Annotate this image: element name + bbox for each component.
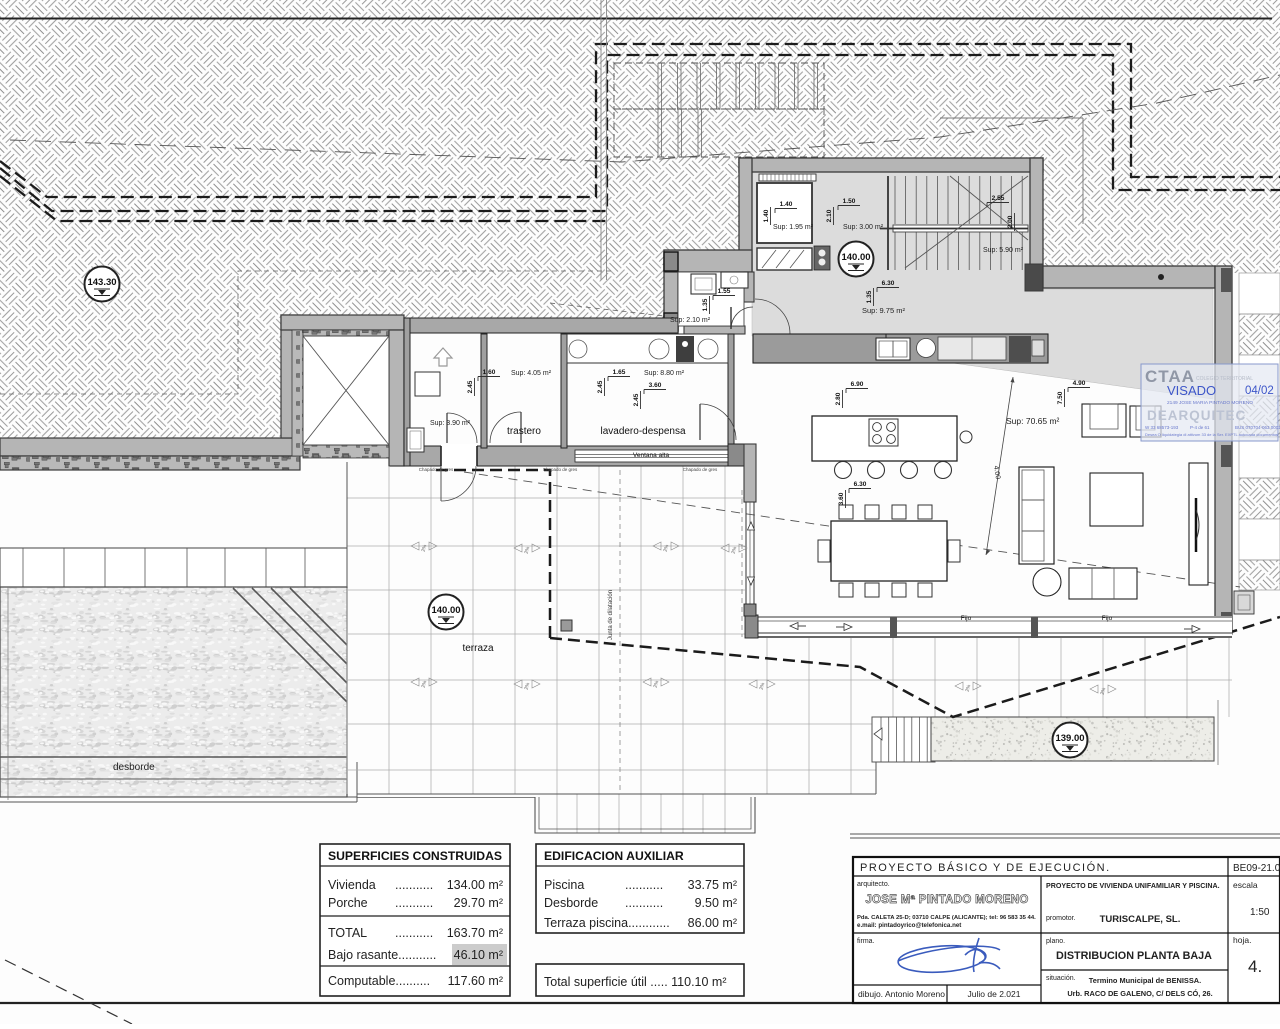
svg-text:DISTRIBUCION PLANTA BAJA: DISTRIBUCION PLANTA BAJA	[1056, 950, 1212, 962]
svg-text:2.80: 2.80	[835, 392, 842, 405]
svg-text:Sup: 8.80 m²: Sup: 8.80 m²	[644, 370, 685, 377]
svg-text:Piscina: Piscina	[544, 878, 584, 892]
svg-text:Vivienda: Vivienda	[328, 878, 376, 892]
svg-text:arquitecto.: arquitecto.	[857, 881, 890, 888]
svg-text:6.30: 6.30	[854, 481, 867, 488]
svg-text:86.00 m²: 86.00 m²	[688, 916, 737, 930]
svg-text:7.50: 7.50	[1057, 391, 1064, 404]
svg-text:1.65: 1.65	[613, 369, 626, 376]
svg-text:Urb. RACO DE GALENO, C/ D: Urb. RACO DE GALENO, C/ DELS CÓ, 26.	[1067, 989, 1212, 998]
svg-text:Chapado de gres: Chapado de gres	[543, 467, 578, 472]
svg-text:140.00: 140.00	[841, 252, 870, 263]
svg-text:hoja.: hoja.	[1233, 935, 1251, 945]
svg-text:1.35: 1.35	[702, 298, 709, 311]
svg-text:Porche: Porche	[328, 896, 368, 910]
svg-text:BE09-21.0: BE09-21.0	[1233, 863, 1280, 874]
svg-text:2.10: 2.10	[826, 209, 833, 222]
svg-text:Desea O liquidategia di attivu: Desea O liquidategia di attivum 33 de la…	[1145, 432, 1278, 437]
svg-text:Junta de dilatación: Junta de dilatación	[608, 590, 614, 640]
svg-text:2.00: 2.00	[1007, 215, 1014, 228]
svg-text:trastero: trastero	[507, 426, 541, 437]
svg-text:4.90: 4.90	[1073, 380, 1086, 387]
svg-text:...........: ...........	[395, 878, 433, 892]
svg-text:143.30: 143.30	[87, 277, 116, 288]
svg-text:Total superficie útil ..... 11: Total superficie útil ..... 110.10 m²	[544, 975, 727, 989]
svg-text:1.60: 1.60	[483, 369, 496, 376]
svg-text:1.55: 1.55	[718, 288, 731, 295]
svg-text:1.35: 1.35	[866, 290, 873, 303]
svg-text:9.50 m²: 9.50 m²	[695, 896, 737, 910]
svg-text:33.75 m²: 33.75 m²	[688, 878, 737, 892]
svg-text:6.90: 6.90	[851, 381, 864, 388]
svg-text:46.10 m²: 46.10 m²	[454, 948, 503, 962]
svg-text:VISADO: VISADO	[1167, 383, 1216, 398]
svg-text:lavadero-despensa: lavadero-despensa	[600, 426, 685, 437]
svg-text:2.45: 2.45	[597, 380, 604, 393]
svg-text:Ventana alta: Ventana alta	[633, 452, 670, 459]
svg-text:134.00 m²: 134.00 m²	[447, 878, 503, 892]
svg-text:04/02: 04/02	[1245, 385, 1274, 397]
svg-text:3.60: 3.60	[649, 382, 662, 389]
svg-text:...........: ...........	[395, 896, 433, 910]
svg-text:1.40: 1.40	[780, 201, 793, 208]
svg-text:firma.: firma.	[857, 938, 875, 945]
svg-text:Termino Municipal de BENISS: Termino Municipal de BENISSA.	[1089, 976, 1201, 985]
svg-text:Fijo: Fijo	[961, 615, 972, 622]
svg-text:Sup: 2.10 m²: Sup: 2.10 m²	[670, 317, 711, 324]
svg-text:6.30: 6.30	[882, 280, 895, 287]
svg-text:...........: ...........	[625, 878, 663, 892]
svg-text:2.45: 2.45	[467, 380, 474, 393]
svg-text:TURISCALPE, SL.: TURISCALPE, SL.	[1100, 914, 1181, 925]
svg-text:PROYECTO DE VIVIENDA UNIFAM: PROYECTO DE VIVIENDA UNIFAMILIAR Y PISCI…	[1046, 882, 1220, 890]
svg-text:e.mail: pintadoyrico@telefoni: e.mail: pintadoyrico@telefonica.net	[857, 922, 961, 929]
svg-text:terraza: terraza	[462, 643, 494, 654]
svg-text:Bajo rasante...........: Bajo rasante...........	[328, 948, 436, 962]
svg-text:BUS 070704-063 0001: BUS 070704-063 0001	[1235, 425, 1280, 430]
svg-text:Sup: 3.00 m²: Sup: 3.00 m²	[843, 224, 884, 231]
svg-text:Sup: 4.05 m²: Sup: 4.05 m²	[511, 370, 552, 377]
svg-text:Chapado de gres: Chapado de gres	[683, 467, 718, 472]
svg-text:W 33 68573-193: W 33 68573-193	[1145, 425, 1179, 430]
svg-text:Sup: 1.95 m²: Sup: 1.95 m²	[773, 224, 814, 231]
svg-text:Chapado de gres: Chapado de gres	[419, 467, 454, 472]
svg-text:Sup: 3.90 m²: Sup: 3.90 m²	[430, 420, 471, 427]
svg-text:2.45: 2.45	[633, 393, 640, 406]
svg-text:plano.: plano.	[1046, 938, 1065, 945]
svg-text:TOTAL: TOTAL	[328, 926, 367, 940]
svg-text:SUPERFICIES CONSTRUIDAS: SUPERFICIES CONSTRUIDAS	[328, 849, 502, 863]
svg-text:29.70 m²: 29.70 m²	[454, 896, 503, 910]
svg-text:Pda. CALETA 25-D; 03710 CA: Pda. CALETA 25-D; 03710 CALPE (ALICANTE)…	[857, 915, 1036, 921]
svg-text:Julio de 2.021: Julio de 2.021	[968, 989, 1021, 999]
svg-text:4.: 4.	[1248, 957, 1262, 976]
svg-text:2149 JOSE MARIA PINTADO MORENO: 2149 JOSE MARIA PINTADO MORENO	[1167, 400, 1253, 406]
svg-text:Computable..........: Computable..........	[328, 974, 430, 988]
svg-text:139.00: 139.00	[1055, 733, 1084, 744]
svg-text:1:50: 1:50	[1250, 907, 1270, 918]
svg-text:EDIFICACION AUXILIAR: EDIFICACION AUXILIAR	[544, 849, 684, 863]
svg-text:Desborde: Desborde	[544, 896, 598, 910]
svg-text:JOSE Mª PINTADO MORENO: JOSE Mª PINTADO MORENO	[865, 894, 1028, 906]
svg-text:...........: ...........	[625, 896, 663, 910]
svg-text:DEARQUITEC: DEARQUITEC	[1147, 408, 1246, 423]
svg-text:dibujo. Antonio Moreno: dibujo. Antonio Moreno	[858, 989, 945, 999]
svg-text:2.55: 2.55	[992, 195, 1005, 202]
svg-text:desborde: desborde	[113, 762, 155, 773]
svg-text:Sup: 70.65 m²: Sup: 70.65 m²	[1006, 416, 1060, 426]
svg-text:3.60: 3.60	[838, 492, 845, 505]
svg-text:P-4 de 61: P-4 de 61	[1190, 425, 1210, 430]
svg-text:Sup: 9.75 m²: Sup: 9.75 m²	[862, 306, 905, 315]
svg-text:situación.: situación.	[1046, 975, 1076, 982]
svg-text:Sup: 5.90 m²: Sup: 5.90 m²	[983, 247, 1024, 254]
svg-text:COLEGIO TERRITORIAL: COLEGIO TERRITORIAL	[1196, 376, 1253, 382]
svg-text:Terraza piscina............: Terraza piscina............	[544, 916, 670, 930]
svg-text:117.60 m²: 117.60 m²	[448, 974, 503, 988]
svg-text:Fijo: Fijo	[1102, 615, 1113, 622]
svg-text:1.40: 1.40	[763, 209, 770, 222]
svg-text:140.00: 140.00	[431, 605, 460, 616]
svg-text:1.50: 1.50	[843, 198, 856, 205]
svg-text:PROYECTO BÁSICO Y DE EJECU: PROYECTO BÁSICO Y DE EJECUCIÓN.	[860, 861, 1111, 874]
svg-text:163.70 m²: 163.70 m²	[447, 926, 503, 940]
svg-text:promotor.: promotor.	[1046, 915, 1076, 922]
svg-text:escala: escala	[1233, 880, 1258, 890]
svg-text:...........: ...........	[395, 926, 433, 940]
